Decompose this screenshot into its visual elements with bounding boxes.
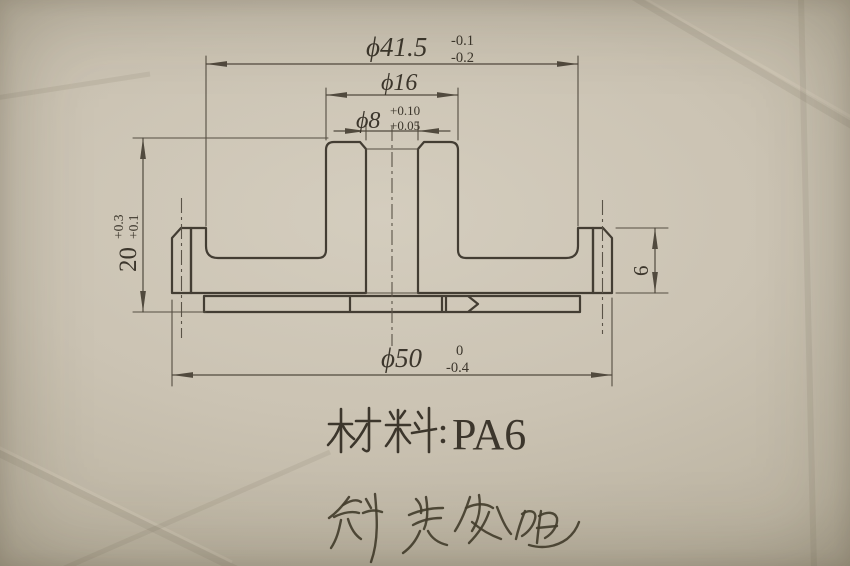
dim-dia41_5-value: ϕ41.5 xyxy=(366,32,427,62)
dim-dia50-value: ϕ50 xyxy=(381,343,422,373)
dim-dia8-value: ϕ8 xyxy=(356,108,380,134)
dim-height20-tol-lower: +0.1 xyxy=(126,215,141,240)
dim-rim6: 6 xyxy=(616,228,668,293)
material-note-glyph-liao xyxy=(386,408,436,452)
dim-dia16-value: ϕ16 xyxy=(381,70,417,96)
dim-height20: 20 +0.3 +0.1 xyxy=(111,138,328,312)
dim-height20-tol-upper: +0.3 xyxy=(111,214,126,239)
material-note-colon xyxy=(441,426,446,444)
dim-dia50-tol-lower: -0.4 xyxy=(446,360,470,376)
dim-rim6-value: 6 xyxy=(629,266,653,277)
material-note: PA6 xyxy=(328,408,526,459)
part-cross-section xyxy=(172,126,612,346)
material-note-value: PA6 xyxy=(452,410,526,459)
dim-dia41_5-tol-upper: -0.1 xyxy=(451,33,474,49)
material-note-glyph-cai xyxy=(328,408,380,452)
photographed-paper: ϕ41.5 -0.1 -0.2 ϕ16 ϕ8 +0.10 +0.05 20 xyxy=(0,0,850,566)
technical-drawing: ϕ41.5 -0.1 -0.2 ϕ16 ϕ8 +0.10 +0.05 20 xyxy=(0,0,850,566)
dim-dia50-tol-upper: 0 xyxy=(456,343,463,359)
dim-dia8-tol-upper: +0.10 xyxy=(390,103,420,118)
dim-height20-value: 20 xyxy=(115,247,142,272)
dim-dia41_5-tol-lower: -0.2 xyxy=(451,50,474,66)
paper-creases xyxy=(0,0,850,566)
dim-dia8-tol-lower: +0.05 xyxy=(390,118,420,133)
handwritten-note xyxy=(329,494,579,562)
part-body-right-section xyxy=(418,142,593,293)
part-body-left-section xyxy=(191,142,366,293)
